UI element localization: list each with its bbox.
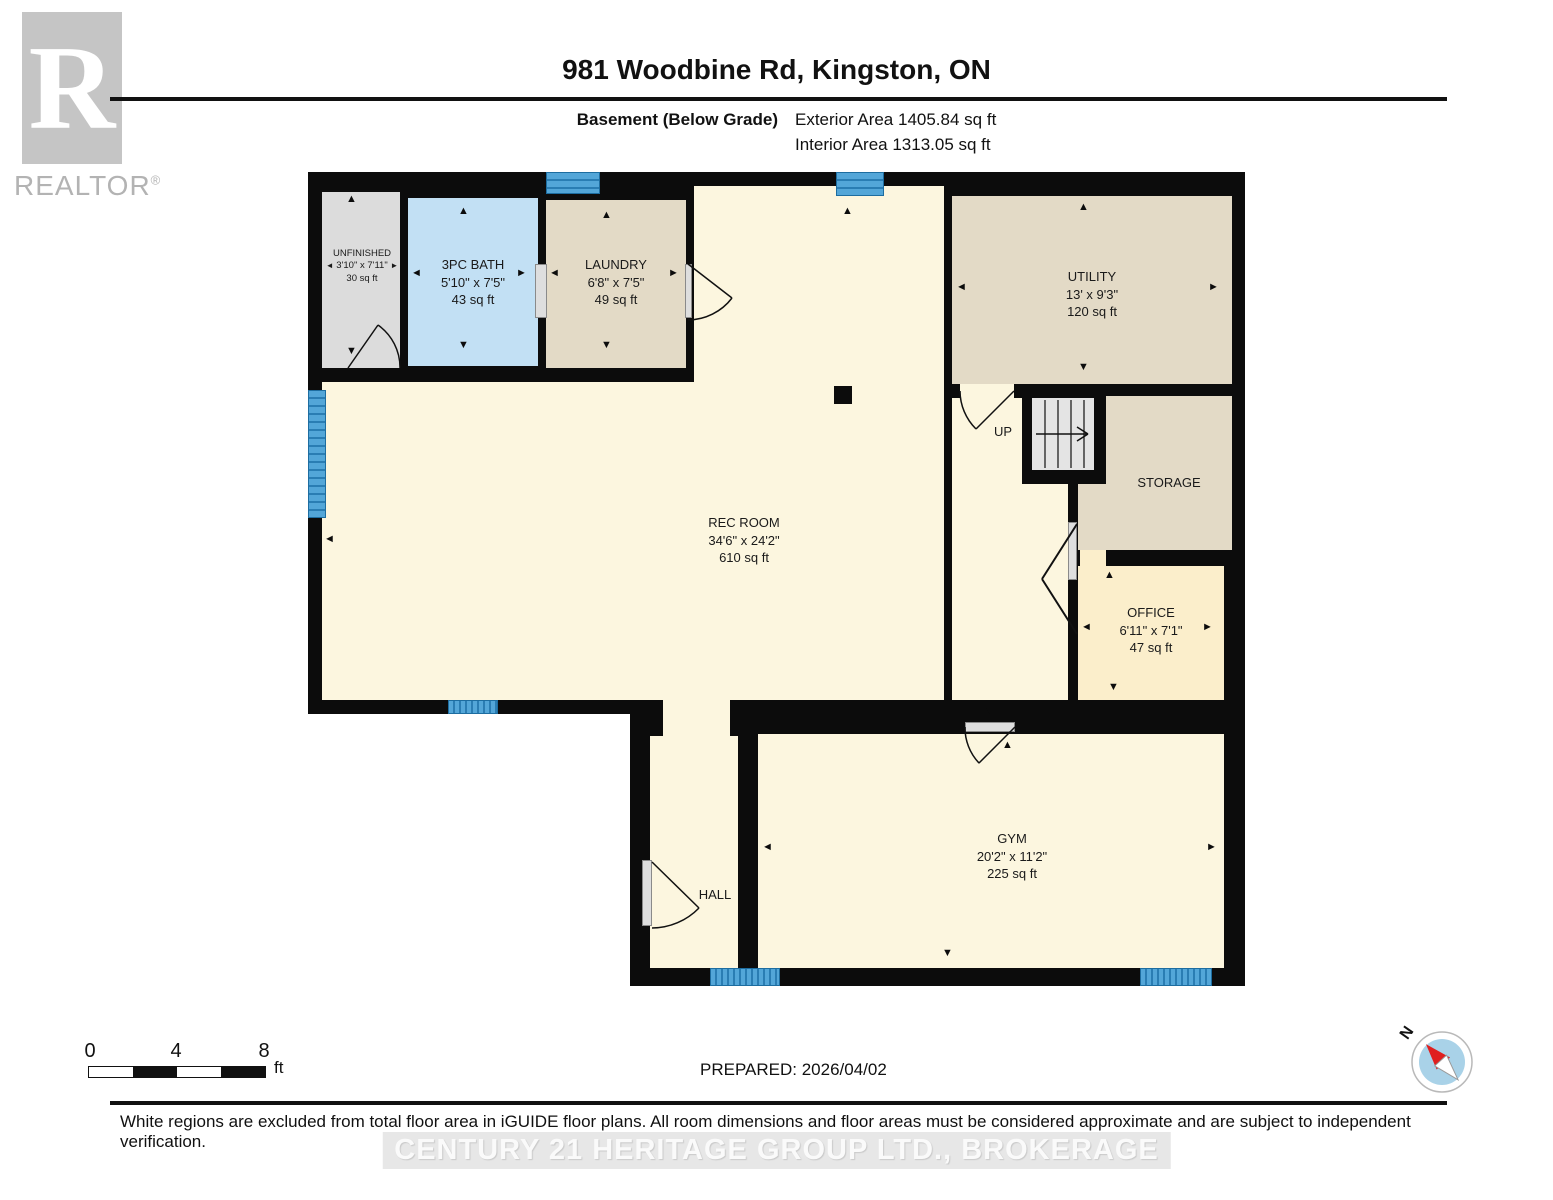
floorplan-page: R REALTOR® 981 Woodbine Rd, Kingston, ON… xyxy=(0,0,1553,1200)
dim-arrow-right: ► xyxy=(1208,282,1219,293)
dim-arrow-right: ► xyxy=(516,268,527,279)
dim-arrow-up: ▲ xyxy=(601,210,612,221)
scale-unit: ft xyxy=(274,1058,283,1078)
dim-arrow-right: ► xyxy=(1206,842,1217,853)
dim-arrow-down: ▼ xyxy=(601,340,612,351)
dim-arrow-left: ◄ xyxy=(324,534,335,545)
dim-arrow-up: ▲ xyxy=(842,206,853,217)
realtor-logo-text: REALTOR® xyxy=(14,170,161,202)
scale-bar-segments xyxy=(88,1066,266,1078)
label-unfinished: UNFINISHED ◄ 3'10" x 7'11" ► 30 sq ft xyxy=(316,248,408,285)
dim-arrow-down: ▼ xyxy=(346,346,357,357)
interior-area: Interior Area 1313.05 sq ft xyxy=(795,135,991,155)
label-rec-room: REC ROOM34'6" x 24'2"610 sq ft xyxy=(644,514,844,567)
label-hall: HALL xyxy=(660,886,770,904)
scale-segment xyxy=(177,1067,221,1077)
prepared-date: PREPARED: 2026/04/02 xyxy=(700,1060,887,1080)
scale-tick-8: 8 xyxy=(254,1040,274,1063)
door-bifold-office xyxy=(1042,524,1077,634)
dim-arrow-up: ▲ xyxy=(458,206,469,217)
scale-tick-0: 0 xyxy=(80,1040,100,1063)
dim-arrow-down: ▼ xyxy=(1078,362,1089,373)
realtor-logo-letter: R xyxy=(29,28,116,148)
dim-arrow-down: ▼ xyxy=(984,706,995,717)
brokerage-watermark: CENTURY 21 HERITAGE GROUP LTD., BROKERAG… xyxy=(382,1132,1170,1169)
scale-segment xyxy=(221,1067,265,1077)
dim-arrow-up: ▲ xyxy=(1002,740,1013,751)
label-laundry: LAUNDRY6'8" x 7'5"49 sq ft xyxy=(546,256,686,309)
dim-arrow-left: ◄ xyxy=(762,842,773,853)
right-arrow-icon: ► xyxy=(390,261,398,270)
dim-arrow-left: ◄ xyxy=(956,282,967,293)
door-arc-utility xyxy=(960,391,1014,429)
dim-arrow-up: ▲ xyxy=(1104,570,1115,581)
dim-arrow-down: ▼ xyxy=(1108,682,1119,693)
label-storage: STORAGE xyxy=(1106,474,1232,492)
label-utility: UTILITY13' x 9'3"120 sq ft xyxy=(952,268,1232,321)
door-arc-laundry xyxy=(688,264,732,320)
page-title: 981 Woodbine Rd, Kingston, ON xyxy=(0,54,1553,86)
dim-arrow-right: ► xyxy=(1202,622,1213,633)
compass-icon: N xyxy=(1392,1012,1484,1104)
label-gym: GYM20'2" x 11'2"225 sq ft xyxy=(912,830,1112,883)
stair-direction-arrow xyxy=(1036,427,1088,441)
compass-north-label: N xyxy=(1397,1023,1418,1042)
dim-arrow-left: ◄ xyxy=(411,268,422,279)
label-bath: 3PC BATH5'10" x 7'5"43 sq ft xyxy=(408,256,538,309)
dim-arrow-down: ▼ xyxy=(942,948,953,959)
dim-arrow-left: ◄ xyxy=(1081,622,1092,633)
scale-tick-4: 4 xyxy=(166,1040,186,1063)
footer-divider xyxy=(110,1101,1447,1105)
dim-arrow-down: ▼ xyxy=(458,340,469,351)
dim-arrow-left: ◄ xyxy=(549,268,560,279)
scale-segment xyxy=(89,1067,133,1077)
floorplan: UP xyxy=(308,172,1245,990)
realtor-logo-icon: R xyxy=(22,12,122,164)
exterior-area: Exterior Area 1405.84 sq ft xyxy=(795,110,996,130)
dim-arrow-right: ► xyxy=(668,268,679,279)
scale-segment xyxy=(133,1067,177,1077)
dim-arrow-up: ▲ xyxy=(1078,202,1089,213)
dim-arrow-up: ▲ xyxy=(346,194,357,205)
scale-bar: 0 4 8 ft xyxy=(88,1040,328,1085)
floor-label: Basement (Below Grade) xyxy=(420,110,778,130)
registered-mark: ® xyxy=(151,173,162,188)
title-divider xyxy=(110,97,1447,101)
left-arrow-icon: ◄ xyxy=(326,261,334,270)
